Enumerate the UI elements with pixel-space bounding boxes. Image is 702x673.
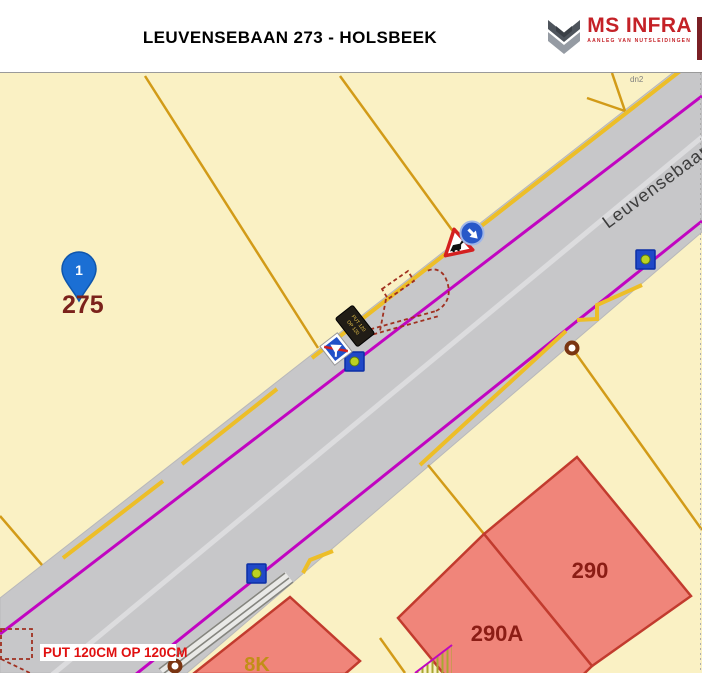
plan-page: LEUVENSEBAAN 273 - HOLSBEEK MS INFRA AAN… [0,0,702,673]
building-290-label: 290 [572,558,609,583]
manhole-marker-1[interactable] [567,343,578,354]
map-area: Leuvensebaan dn2 PUT 120 OP 120 [0,73,702,673]
pin-number: 1 [75,262,83,278]
parcel-code-label: dn2 [630,75,644,84]
building-290a-label: 290A [471,621,524,646]
logo-name: MS INFRA [587,16,692,36]
header: LEUVENSEBAAN 273 - HOLSBEEK MS INFRA AAN… [0,0,702,73]
building-8k-label: 8K [244,654,270,673]
manhole-marker-2[interactable] [170,661,181,672]
page-title: LEUVENSEBAAN 273 - HOLSBEEK [88,28,492,48]
legend-put-note: PUT 120CM OP 120CM [40,644,188,661]
company-logo: MS INFRA AANLEG VAN NUTSLEIDINGEN [546,16,692,63]
site-map: Leuvensebaan dn2 PUT 120 OP 120 [0,73,702,673]
chevron-logo-icon [546,16,582,63]
house-275-label: 275 [62,291,104,319]
logo-accent-bar [697,17,702,60]
utility-marker-3[interactable] [636,250,655,269]
utility-marker-2[interactable] [247,564,266,583]
logo-tagline: AANLEG VAN NUTSLEIDINGEN [587,38,692,44]
svg-text:PUT 120CM OP 120CM: PUT 120CM OP 120CM [43,645,188,660]
direction-arrow-sign[interactable] [461,222,484,245]
